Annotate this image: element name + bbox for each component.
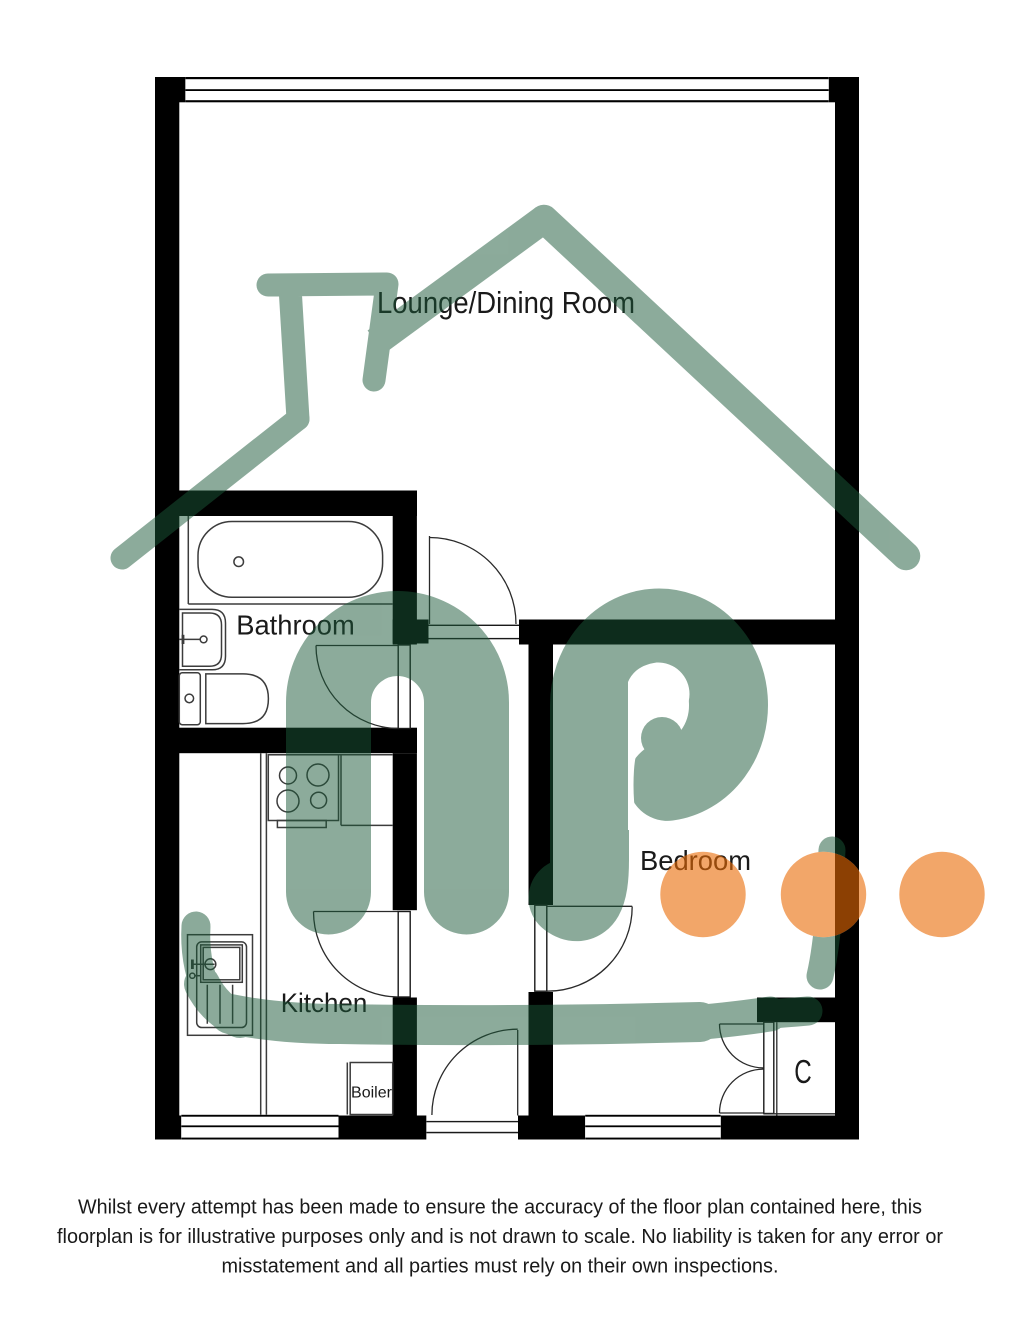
svg-text:C: C: [794, 1053, 812, 1090]
svg-text:misstatement and all parties m: misstatement and all parties must rely o…: [222, 1256, 779, 1278]
svg-text:Boiler: Boiler: [351, 1085, 393, 1102]
svg-text:Whilst every attempt has been: Whilst every attempt has been made to en…: [78, 1197, 922, 1219]
svg-text:floorplan is for illustrative: floorplan is for illustrative purposes o…: [57, 1226, 943, 1248]
